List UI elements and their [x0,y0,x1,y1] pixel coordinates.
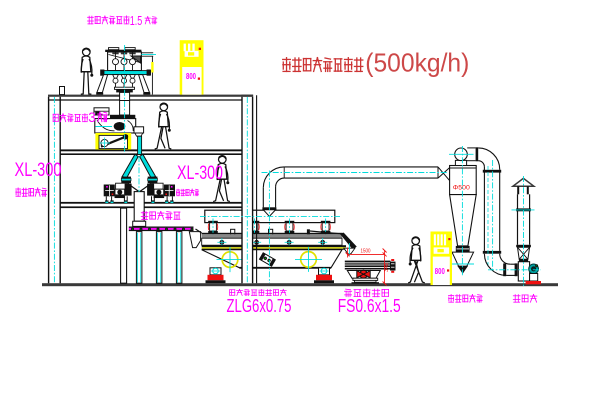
svg-text:800: 800 [435,267,445,276]
svg-text:800: 800 [186,72,196,81]
svg-text:(500kg/h): (500kg/h) [365,48,469,78]
svg-text:XL-300: XL-300 [177,163,223,184]
svg-text:1.5: 1.5 [130,13,143,28]
svg-text:345: 345 [384,263,390,272]
svg-text:XL-300: XL-300 [15,160,62,181]
svg-text:3: 3 [88,110,96,125]
svg-text:1500: 1500 [361,249,371,255]
svg-text:Φ500: Φ500 [453,185,471,191]
svg-text:ZLG6x0.75: ZLG6x0.75 [227,296,292,316]
svg-text:FS0.6x1.5: FS0.6x1.5 [338,296,401,316]
